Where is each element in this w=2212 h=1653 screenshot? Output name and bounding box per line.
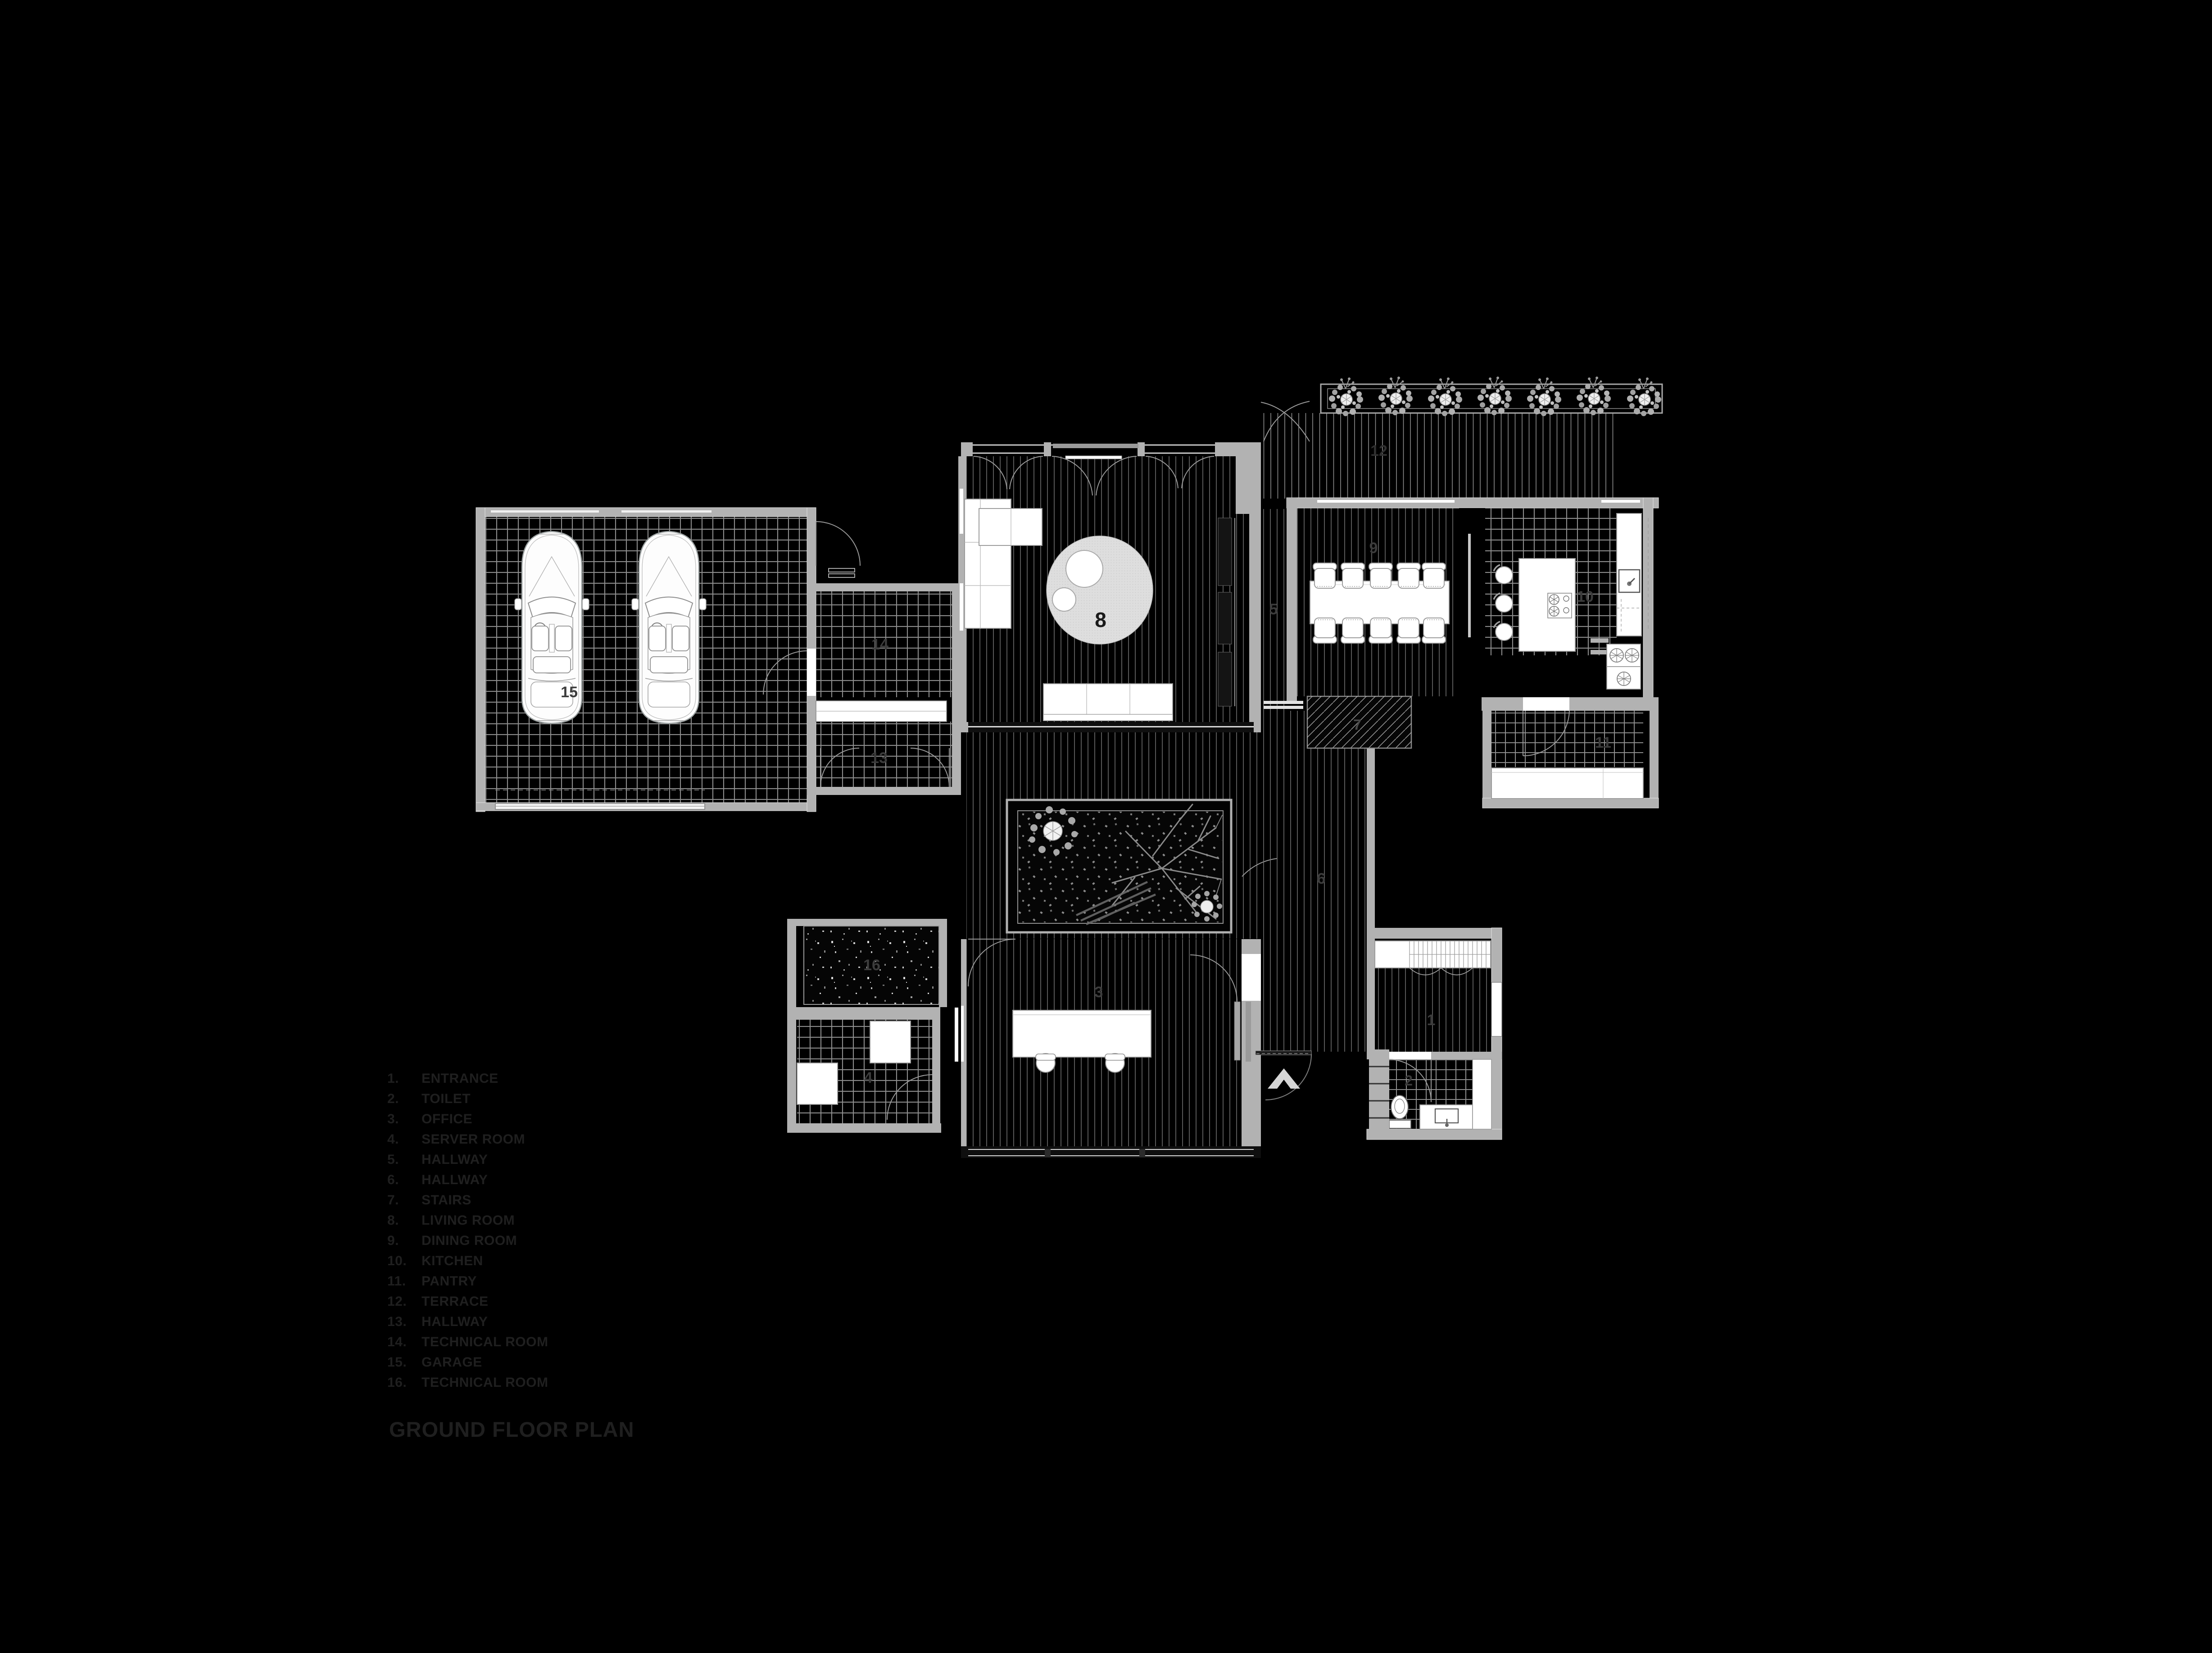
- chair: [1422, 563, 1446, 588]
- room-number-stairs: 7: [1353, 717, 1361, 733]
- legend-row: 3.OFFICE: [387, 1109, 548, 1129]
- legend-label: HALLWAY: [422, 1172, 488, 1188]
- legend-label: TERRACE: [422, 1294, 489, 1309]
- legend-label: ENTRANCE: [422, 1071, 499, 1086]
- room-number-garage: 15: [561, 684, 578, 701]
- legend-row: 13.HALLWAY: [387, 1312, 548, 1332]
- legend-row: 8.LIVING ROOM: [387, 1210, 548, 1231]
- exterior-stair: [1369, 1049, 1389, 1135]
- wall: [1482, 697, 1659, 711]
- wall: [1215, 442, 1261, 456]
- door-opening: [1523, 697, 1569, 711]
- wall: [1236, 456, 1261, 514]
- legend-number: 1.: [387, 1071, 422, 1086]
- wall: [1287, 498, 1659, 508]
- media-wall: [1218, 592, 1232, 644]
- legend-number: 2.: [387, 1091, 422, 1107]
- wall: [1367, 928, 1502, 939]
- wall: [787, 919, 940, 926]
- legend-row: 1.ENTRANCE: [387, 1068, 548, 1089]
- room-number-hallway6: 6: [1317, 870, 1326, 887]
- door-opening: [807, 649, 816, 696]
- walkway-floor: [1230, 800, 1261, 933]
- office: 3: [961, 939, 1261, 1158]
- desk: [1013, 1010, 1151, 1057]
- pantry-floor: [1491, 711, 1643, 767]
- legend-label: OFFICE: [422, 1112, 472, 1127]
- legend-row: 14.TECHNICAL ROOM: [387, 1332, 548, 1352]
- living-room: 8: [958, 442, 1261, 732]
- legend-number: 12.: [387, 1294, 422, 1309]
- sofa-chaise: [979, 509, 1042, 545]
- legend-row: 2.TOILET: [387, 1089, 548, 1109]
- legend-label: HALLWAY: [422, 1314, 488, 1330]
- wall: [1643, 498, 1653, 701]
- legend-row: 11.PANTRY: [387, 1271, 548, 1291]
- legend-number: 10.: [387, 1253, 422, 1269]
- hall-floor: [1375, 968, 1491, 1052]
- media-wall: [1218, 652, 1232, 706]
- wall: [476, 508, 485, 812]
- room-number-toilet: 2: [1405, 1072, 1413, 1089]
- legend-number: 15.: [387, 1355, 422, 1370]
- wall: [787, 1123, 941, 1133]
- wall: [961, 1146, 1261, 1158]
- plant-icon: [1527, 377, 1561, 416]
- room-number-office: 3: [1095, 984, 1103, 1001]
- door-opening: [1242, 954, 1261, 1001]
- legend-number: 6.: [387, 1172, 422, 1188]
- plant-icon: [1329, 377, 1363, 416]
- fan-icon: [1625, 649, 1639, 662]
- plant-icon: [1577, 377, 1611, 415]
- hallway-13: 13: [816, 701, 952, 787]
- stairs: 7: [1307, 696, 1411, 748]
- wall: [796, 1007, 940, 1020]
- wall: [1138, 442, 1145, 456]
- step: [1264, 701, 1303, 704]
- legend-label: GARAGE: [422, 1355, 482, 1370]
- north-arrow-icon: [1268, 1068, 1300, 1089]
- entry-steps: [829, 568, 855, 572]
- wall: [1482, 798, 1659, 808]
- room-number-technical16: 16: [863, 957, 880, 974]
- car-icon: [632, 531, 706, 723]
- garage: 15: [476, 508, 860, 812]
- hallway-floor: [1261, 749, 1367, 1052]
- legend-row: 9.DINING ROOM: [387, 1231, 548, 1251]
- legend-row: 6.HALLWAY: [387, 1170, 548, 1190]
- legend-row: 7.STAIRS: [387, 1190, 548, 1210]
- legend-number: 13.: [387, 1314, 422, 1330]
- plant-icon: [1627, 377, 1661, 416]
- walkway-floor: [966, 732, 1261, 800]
- wall: [932, 1017, 940, 1123]
- window: [961, 1006, 964, 1062]
- fan-icon: [1617, 672, 1631, 686]
- hallway-5: 5: [1261, 509, 1287, 711]
- chair: [1369, 563, 1392, 588]
- office-chair: [1105, 1054, 1125, 1072]
- legend-label: TOILET: [422, 1091, 471, 1107]
- legend-number: 3.: [387, 1112, 422, 1127]
- legend-label: STAIRS: [422, 1193, 471, 1208]
- wall: [939, 919, 947, 1007]
- wall: [787, 919, 796, 1133]
- door-opening: [1384, 1052, 1431, 1059]
- room-number-pantry: 11: [1595, 734, 1611, 751]
- chair: [1313, 618, 1337, 643]
- wall: [1287, 498, 1297, 703]
- legend-number: 14.: [387, 1335, 422, 1350]
- terrace: 12: [1261, 377, 1662, 499]
- plant-icon: [1378, 377, 1413, 415]
- legend-number: 7.: [387, 1193, 422, 1208]
- step: [1264, 706, 1303, 709]
- legend-number: 8.: [387, 1213, 422, 1228]
- wall: [1367, 749, 1375, 1052]
- window: [960, 583, 963, 631]
- wall: [961, 442, 973, 456]
- fan-icon: [1610, 649, 1623, 662]
- chair: [1341, 563, 1364, 588]
- walkway-floor: [966, 933, 1261, 939]
- legend-label: KITCHEN: [422, 1253, 483, 1269]
- legend-label: DINING ROOM: [422, 1233, 517, 1249]
- chair: [1397, 618, 1420, 643]
- plant-icon: [1478, 377, 1512, 415]
- wall-slot: [1468, 534, 1471, 637]
- wall: [1044, 442, 1051, 456]
- chair: [1313, 563, 1337, 588]
- room-number-server: 4: [864, 1069, 873, 1086]
- legend-label: TECHNICAL ROOM: [422, 1335, 548, 1350]
- server-rack: [870, 1021, 911, 1063]
- door-leaf: [955, 1008, 958, 1062]
- car-icon: [515, 531, 589, 723]
- window: [1601, 500, 1640, 503]
- legend-row: 10.KITCHEN: [387, 1251, 548, 1271]
- legend-label: TECHNICAL ROOM: [422, 1375, 548, 1390]
- legend-number: 11.: [387, 1274, 422, 1289]
- room-number-hallway13: 13: [870, 749, 888, 767]
- window: [960, 489, 963, 534]
- sliding-door: [1053, 444, 1138, 448]
- room-number-hallway5: 5: [1269, 601, 1278, 618]
- legend-number: 9.: [387, 1233, 422, 1249]
- hallway-6: 6: [1256, 701, 1375, 1100]
- legend-label: HALLWAY: [422, 1152, 488, 1167]
- chair: [1422, 618, 1446, 643]
- legend-row: 12.TERRACE: [387, 1291, 548, 1312]
- legend: 1.ENTRANCE 2.TOILET 3.OFFICE 4.SERVER RO…: [387, 1068, 548, 1393]
- server-room-4: 4: [797, 1008, 958, 1123]
- legend-label: LIVING ROOM: [422, 1213, 515, 1228]
- legend-row: 16.TECHNICAL ROOM: [387, 1372, 548, 1393]
- courtyard: [966, 732, 1277, 939]
- sink: [1619, 570, 1640, 592]
- wall: [807, 787, 961, 795]
- chair: [1397, 563, 1420, 588]
- media-wall: [1218, 518, 1232, 586]
- wall: [1482, 697, 1491, 808]
- wall: [808, 583, 961, 591]
- legend-row: 4.SERVER ROOM: [387, 1129, 548, 1149]
- wall: [1459, 508, 1485, 696]
- entry-door: [1256, 1051, 1311, 1055]
- coffee-table: [1052, 588, 1076, 611]
- room-number-technical14: 14: [871, 636, 888, 653]
- door-leaf: [1234, 1002, 1240, 1060]
- legend-number: 16.: [387, 1375, 422, 1390]
- room-number-terrace: 12: [1370, 442, 1387, 459]
- coffee-table: [1066, 550, 1103, 587]
- wall: [1650, 697, 1659, 808]
- room-number-dining: 9: [1369, 540, 1378, 557]
- porch-door-swing: [816, 522, 860, 566]
- chair: [1369, 618, 1392, 643]
- pantry: 11: [1482, 697, 1659, 808]
- window: [968, 726, 1254, 727]
- room-number-entrance: 1: [1427, 1012, 1436, 1029]
- chair: [1341, 618, 1364, 643]
- legend-row: 15.GARAGE: [387, 1352, 548, 1372]
- glazing: [1246, 1002, 1251, 1062]
- kitchen: 10: [1485, 498, 1653, 701]
- hallway-floor: [1261, 711, 1306, 749]
- floor-plan: 12 15 14 13: [0, 0, 2212, 1653]
- legend-label: SERVER ROOM: [422, 1132, 525, 1147]
- legend-number: 5.: [387, 1152, 422, 1167]
- legend-row: 5.HALLWAY: [387, 1149, 548, 1170]
- page: { "title": "GROUND FLOOR PLAN", "legend"…: [0, 0, 2212, 1653]
- plan-title: GROUND FLOOR PLAN: [389, 1417, 634, 1442]
- plant-icon: [1428, 377, 1462, 416]
- office-chair: [1036, 1054, 1056, 1072]
- room-number-living: 8: [1095, 608, 1106, 631]
- window: [1491, 982, 1502, 1036]
- walkway-floor: [966, 800, 1008, 933]
- legend-label: PANTRY: [422, 1274, 477, 1289]
- storage-column: [1473, 1059, 1491, 1129]
- legend-number: 4.: [387, 1132, 422, 1147]
- server-rack: [797, 1063, 838, 1104]
- window: [1317, 500, 1455, 503]
- terrace-deck: [1261, 413, 1614, 499]
- room-number-kitchen: 10: [1577, 588, 1594, 605]
